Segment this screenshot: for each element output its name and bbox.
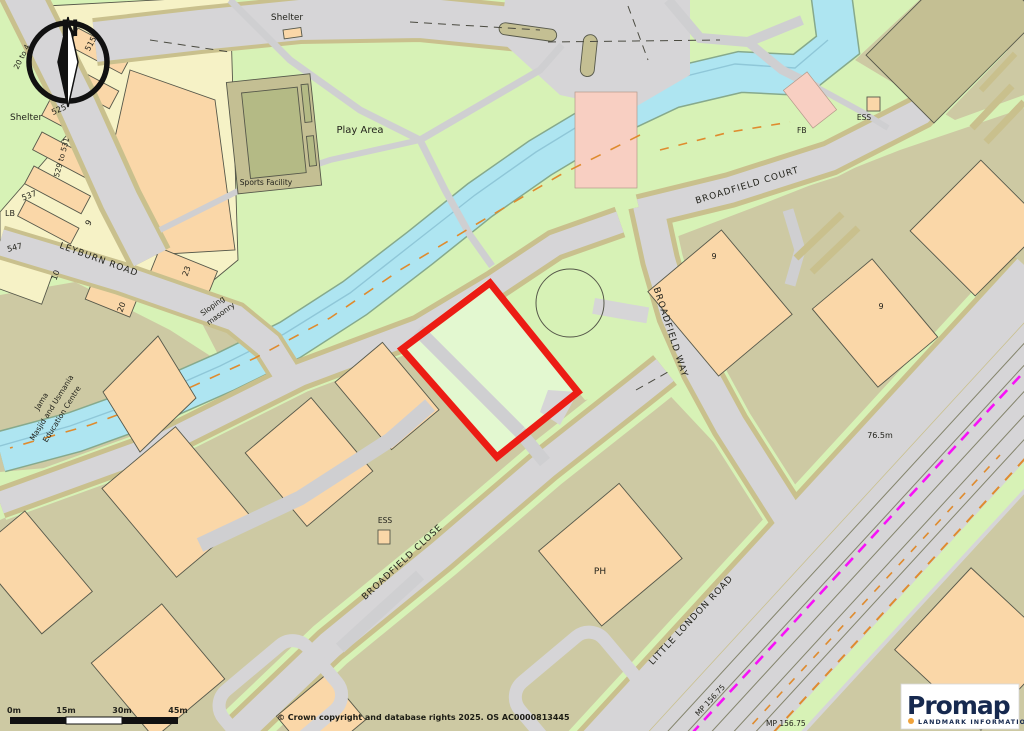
label-9-east-1: 9 [711,252,716,261]
label-shelter-top: Shelter [271,13,304,23]
scale-0: 0m [7,706,21,715]
ess-ne-hut [867,97,880,111]
label-spot-height: 76.5m [867,431,893,440]
label-mp-horizontal: MP 156.75 [766,719,806,728]
scale-45: 45m [168,706,187,715]
promap-logo-dot [908,718,914,724]
label-ess-ne: ESS [857,113,871,122]
scale-15: 15m [56,706,75,715]
label-ess-sw: ESS [378,516,392,525]
promap-logo: Promap LANDMARK INFORMATION [901,684,1024,729]
label-play-area: Play Area [336,125,383,136]
promap-logo-tagline: LANDMARK INFORMATION [918,719,1024,726]
label-fb: FB [797,126,806,135]
label-ph: PH [594,567,606,577]
promap-logo-name: Promap [907,691,1010,720]
label-9-east-2: 9 [878,302,883,311]
scale-30: 30m [112,706,131,715]
promap-map-view[interactable]: Shelter Shelter 20 to 4 Play Area Sports… [0,0,1024,731]
sports-facility [226,74,321,194]
map-canvas[interactable]: Shelter Shelter 20 to 4 Play Area Sports… [0,0,1024,731]
ess-sw-hut [378,530,390,544]
label-sports-facility: Sports Facility [240,178,293,187]
copyright-text: © Crown copyright and database rights 20… [277,713,570,722]
compass-north-letter: N [61,17,79,42]
road-bridge [575,92,637,188]
label-lb: LB [5,209,15,218]
shelter-hut [283,27,302,38]
label-shelter-left: Shelter [10,113,43,123]
